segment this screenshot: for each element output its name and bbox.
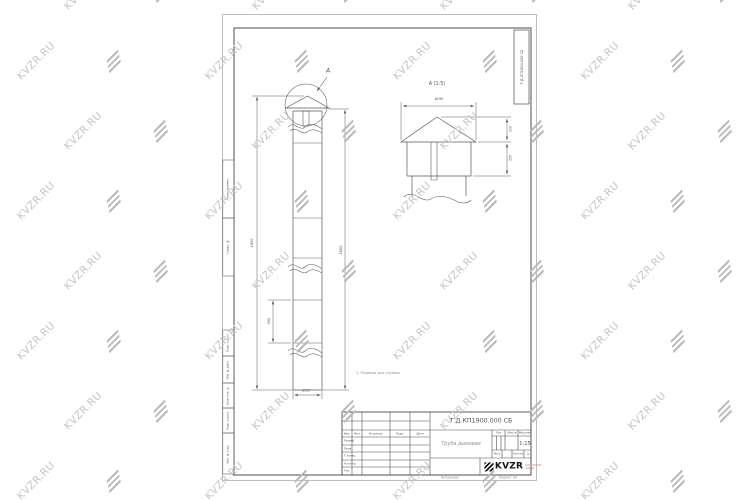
mass-label: Масса	[507, 432, 516, 435]
logo-taglines: КОТЕЛЬНЫЙ ЗАВОД	[525, 464, 526, 469]
sig-row-utv: Утв.	[344, 470, 350, 473]
detail-view-dimensions	[401, 102, 511, 176]
sig-row-tkontr: Т.контр.	[344, 455, 356, 458]
margin-cell-label: Взам. инв. №	[227, 386, 230, 404]
note-text: 1. Размеры для справок.	[356, 371, 401, 375]
kvzr-logo: KVZR КОТЕЛЬНЫЙ ЗАВОД	[484, 460, 527, 473]
logo-text: KVZR	[495, 462, 523, 471]
footer-format: Формат А4	[499, 476, 517, 479]
margin-cell-label: Инв. № дубл.	[227, 360, 230, 378]
sig-row-prov: Пров.	[344, 447, 352, 450]
sig-row-razrab: Разраб.	[344, 440, 355, 443]
logo-tagline-2: ЗАВОД	[525, 467, 526, 470]
rev-col-izm: Изм.	[344, 432, 351, 435]
scale-label: Масштаб	[519, 432, 531, 435]
dimension-label-base-diameter: ø150	[302, 389, 310, 392]
sheet-frame	[234, 28, 531, 475]
margin-cell-label: Справ. №	[227, 240, 230, 255]
doc-number: Т.Д.КП1900.000 СБ	[449, 418, 512, 424]
margin-cell-label: Подп. и дата	[227, 334, 230, 352]
margin-cell-label: Перв. примен.	[227, 178, 230, 200]
logo-stripes-icon	[484, 462, 493, 471]
sig-row-nkontr: Н.контр.	[344, 462, 357, 465]
rev-col-docnum: № докум.	[369, 432, 383, 435]
sheets-value: 1	[526, 452, 528, 456]
dimension-label-skirt-height: 155	[509, 155, 512, 161]
scale-value: 1:15	[519, 441, 531, 446]
dimension-label-cap-diameter: ø190	[434, 97, 443, 101]
detail-view	[401, 117, 476, 203]
dimension-label-roof-height: 120	[509, 126, 512, 132]
lit-label: Лит.	[495, 432, 501, 435]
dimension-label-height-left: 1900	[250, 239, 254, 248]
part-name: Труба дымовая	[441, 442, 480, 447]
dimension-label-height-right: 1800	[339, 246, 343, 255]
margin-cell-label: Подп. и дата	[227, 411, 230, 429]
front-view-dimensions	[252, 96, 349, 399]
detail-view-title: А (1:5)	[429, 82, 446, 87]
detail-mark-label: А	[326, 68, 330, 74]
footer-kopiroval: Копировал	[441, 476, 459, 479]
drawing-scan: Т.Д.КП1900.000 СБ Перв. примен. Справ. №…	[0, 0, 750, 500]
dimension-label-segment: 500	[267, 318, 271, 325]
corner-stamp: Т.Д.КП1900.000 СБ	[520, 50, 524, 85]
rev-col-sign: Подп.	[396, 432, 404, 435]
sheets-label: Листов	[513, 453, 523, 456]
margin-cell-label: Инв. № подл.	[227, 444, 230, 463]
front-view	[285, 77, 329, 390]
rev-col-date: Дата	[416, 432, 423, 435]
sheet-label: Лист	[493, 453, 500, 456]
rev-col-list: Лист	[353, 432, 360, 435]
linework	[0, 0, 750, 500]
